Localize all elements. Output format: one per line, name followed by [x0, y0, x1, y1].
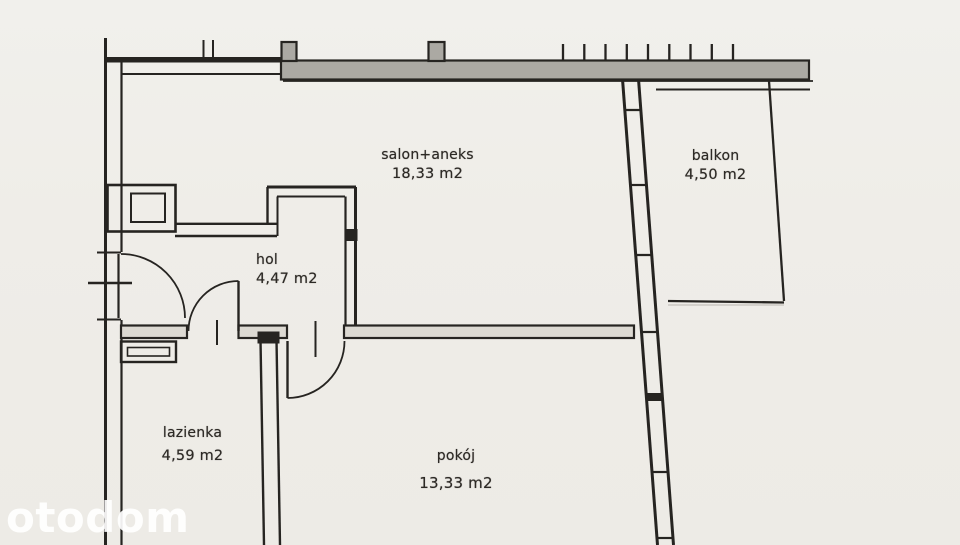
room-name: hol [256, 251, 366, 270]
room-area: 4,59 m2 [130, 445, 255, 468]
room-area: 18,33 m2 [340, 165, 515, 184]
interior-wall-south [121, 320, 634, 357]
top-wall [104, 40, 283, 74]
room-name: balkon [648, 147, 783, 166]
balcony-railing-ticks [563, 44, 733, 61]
room-divider-wall [261, 340, 281, 545]
watermark-logo: otodom [6, 495, 189, 541]
room-area: 4,47 m2 [256, 270, 366, 289]
room-name: pokój [391, 443, 521, 470]
room-name: salon+aneks [340, 146, 515, 165]
room-label-salon: salon+aneks 18,33 m2 [340, 146, 515, 184]
room-area: 13,33 m2 [391, 470, 521, 497]
room-label-lazienka: lazienka 4,59 m2 [130, 422, 255, 468]
shaft-box [108, 185, 176, 232]
door-entrance [88, 253, 185, 320]
room-name: lazienka [130, 422, 255, 445]
door-hol [189, 281, 239, 331]
balcony-outline [656, 81, 810, 305]
room-label-pokoj: pokój 13,33 m2 [391, 443, 521, 497]
room-area: 4,50 m2 [648, 166, 783, 185]
bathroom-nook [121, 342, 176, 363]
room-label-hol: hol 4,47 m2 [256, 251, 366, 288]
floorplan-canvas: salon+aneks 18,33 m2 balkon 4,50 m2 hol … [0, 0, 960, 545]
room-label-balkon: balkon 4,50 m2 [648, 147, 783, 185]
